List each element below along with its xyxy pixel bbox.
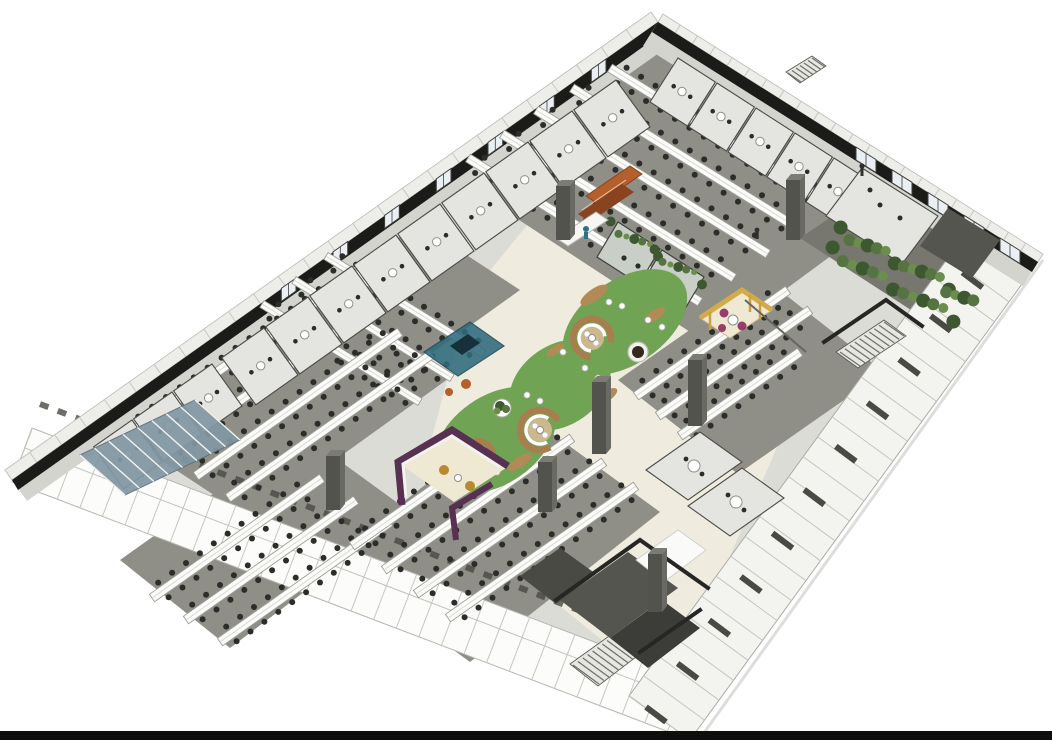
orange-lounge-chair (461, 379, 471, 389)
gold-chair (439, 465, 449, 475)
room-chair (742, 508, 747, 513)
pod-chair (635, 263, 640, 268)
booth-table (455, 475, 462, 482)
pillar (538, 456, 557, 512)
person-figure (859, 163, 864, 168)
pillar (592, 376, 611, 454)
round-table (730, 496, 742, 508)
booth-table (728, 315, 738, 325)
person-figure-body (584, 232, 588, 239)
stool (524, 392, 530, 398)
person-figure (755, 228, 760, 233)
stool (582, 365, 588, 371)
pillar (326, 450, 345, 510)
gold-chair (465, 481, 475, 491)
magenta-chair (738, 322, 747, 331)
room-chair (878, 203, 883, 208)
orange-lounge-chair (445, 388, 453, 396)
pod-table (589, 335, 596, 342)
person-figure-body (861, 168, 864, 176)
pod-seat (542, 432, 548, 438)
person-figure-body (756, 232, 759, 239)
pillar (556, 180, 575, 240)
round-table (688, 460, 700, 472)
room-chair (700, 472, 705, 477)
pillar (688, 354, 707, 426)
planter-bush (502, 405, 510, 413)
rendering-canvas (0, 0, 1052, 740)
room-chair (726, 493, 731, 498)
pod-table (537, 427, 544, 434)
magenta-chair (718, 324, 726, 332)
stool (645, 317, 651, 323)
pillar (648, 548, 667, 612)
pod-chair (621, 255, 626, 260)
room-chair (898, 216, 903, 221)
stool (606, 299, 612, 305)
person-figure (583, 226, 589, 232)
magenta-chair (720, 309, 729, 318)
stool (659, 324, 665, 330)
stool (537, 398, 543, 404)
planter-bush (494, 408, 501, 415)
stool (560, 349, 566, 355)
fire-pit (632, 346, 644, 358)
room-chair (868, 188, 873, 193)
bottom-bar (0, 731, 1052, 740)
stool (619, 303, 625, 309)
pillar (786, 174, 805, 240)
room-chair (684, 457, 689, 462)
office-floorplan-rendering (0, 0, 1052, 740)
